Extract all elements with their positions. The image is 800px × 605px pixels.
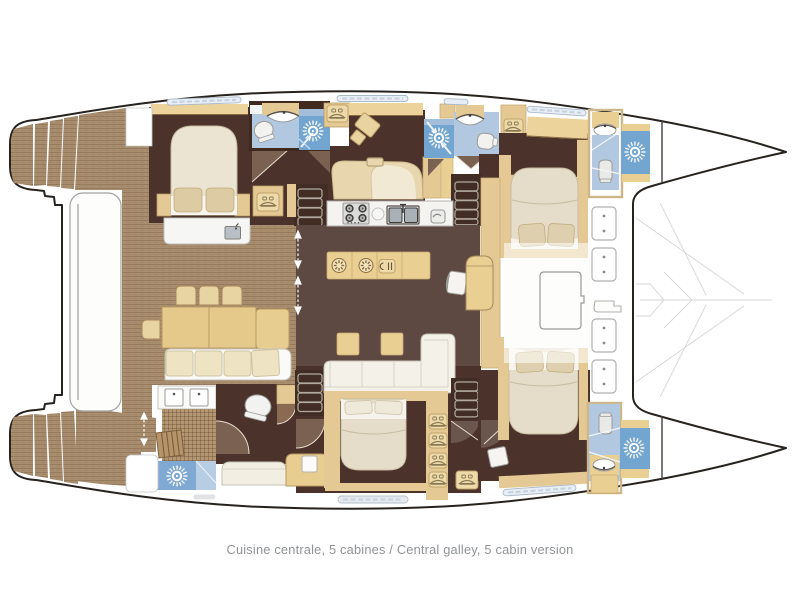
svg-text:Cuisine centrale, 5 cabines /: Cuisine centrale, 5 cabines / Central ga…	[227, 542, 574, 557]
